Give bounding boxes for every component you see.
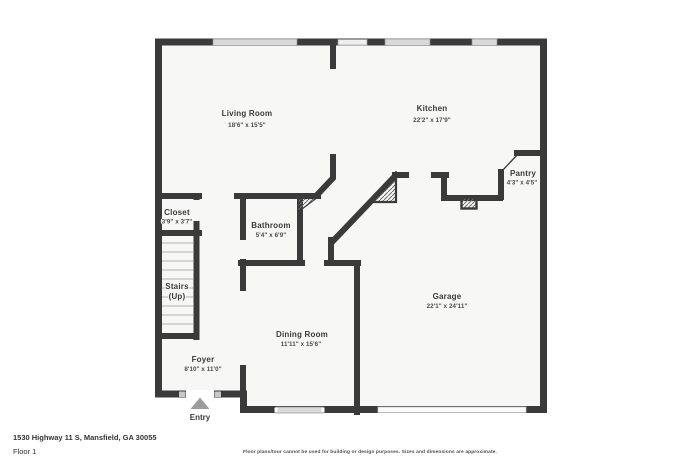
pantry-label: Pantry [510,169,536,178]
kitchen-window-left [385,39,430,46]
garage-label: Garage [433,292,462,301]
closet-label: Closet [164,208,190,217]
bathroom-label: Bathroom [251,221,290,230]
bathroom-door-opening [239,240,247,259]
dining-window-cap-right [322,408,325,413]
dining-window-cap-left [275,408,278,413]
property-address: 1530 Highway 11 S, Mansfield, GA 30055 [13,433,157,442]
kitchen-window-right [472,39,497,46]
living-room-dims: 18'6" x 15'5" [228,122,266,129]
entry-door-opening [186,390,214,398]
garage-vehicle-door [378,407,526,413]
living-room-window [213,39,297,46]
disclaimer-text: Floor plans/tour cannot be used for buil… [243,450,497,455]
stairs-label-line2: (Up) [169,292,186,301]
entry-arrow-icon [191,398,210,410]
kitchen-label: Kitchen [417,104,448,113]
garage-dims: 22'1" x 24'11" [427,303,468,310]
floor-plan-page: Living Room 18'6" x 15'5" Kitchen 22'2" … [0,0,700,467]
kitchen-dims: 22'2" x 17'9" [413,117,451,124]
bathroom-dims: 5'4" x 6'9" [256,232,287,239]
entry-label: Entry [190,413,211,422]
pantry-dims: 4'3" x 4'5" [507,180,538,187]
dining-room-label: Dining Room [276,330,328,339]
foyer-dims: 8'10" x 11'0" [184,366,221,373]
living-room-label: Living Room [222,109,273,118]
foyer-label: Foyer [192,355,215,364]
kitchen-window-small [338,40,367,46]
entry-door-cap-left [179,392,186,398]
closet-door-opening [193,200,201,221]
floor-plan-drawing: Living Room 18'6" x 15'5" Kitchen 22'2" … [0,0,700,467]
structural-post [462,198,477,209]
entry-door-cap-right [215,392,222,398]
dining-room-window [276,407,323,413]
floor-number-label: Floor 1 [13,447,36,456]
closet-dims: 3'9" x 3'7" [162,219,193,226]
garage-door-opening-top [409,171,431,179]
stairs-label-line1: Stairs [165,282,189,291]
dining-room-dims: 11'11" x 15'6" [281,341,322,348]
